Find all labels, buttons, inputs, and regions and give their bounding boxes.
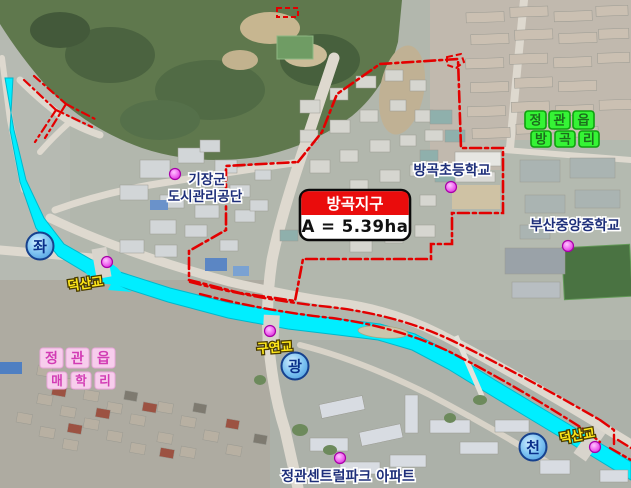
- district-area: A = 5.39ha: [302, 217, 409, 236]
- place-marker: [170, 169, 181, 180]
- road-badge-right: 천: [520, 434, 547, 461]
- road-badge-center-label: 광: [288, 357, 302, 375]
- place-marker: [446, 182, 457, 193]
- district-title-box: 방곡지구 A = 5.39ha: [300, 190, 410, 240]
- road-badge-left-label: 좌: [33, 237, 47, 255]
- map-canvas: 좌 광 천 정 관 읍 방 곡 리 정 관 읍 매 학 리: [0, 0, 631, 488]
- char-box: 관: [554, 113, 566, 129]
- district-name: 방곡지구: [326, 195, 383, 213]
- label-banggok-elementary: 방곡초등학교: [413, 162, 490, 179]
- char-box: 정: [45, 350, 58, 367]
- char-box: 곡: [559, 133, 571, 148]
- aerial-imagery: [0, 0, 631, 488]
- label-busan-jungang-middle: 부산중앙중학교: [530, 217, 620, 234]
- sports-field: [562, 244, 631, 299]
- label-gijang-line1: 기장군: [188, 171, 226, 188]
- char-box: 학: [75, 373, 87, 388]
- place-marker: [265, 326, 276, 337]
- label-gijang-line2: 도시관리공단: [168, 188, 243, 205]
- map-viewport: 좌 광 천 정 관 읍 방 곡 리 정 관 읍 매 학 리: [0, 0, 631, 488]
- place-marker: [590, 442, 601, 453]
- area-label-maehak-ri: 정 관 읍 매 학 리: [40, 348, 115, 389]
- char-box: 읍: [97, 351, 110, 367]
- road-badge-right-label: 천: [526, 438, 540, 456]
- char-box: 매: [51, 373, 63, 388]
- place-marker: [102, 257, 113, 268]
- char-box: 방: [535, 132, 547, 148]
- label-guyeon-bridge: 구연교: [256, 340, 293, 357]
- road-badge-left: 좌: [27, 233, 54, 260]
- label-central-park-apt: 정관센트럴파크 아파트: [281, 468, 415, 485]
- place-marker: [563, 241, 574, 252]
- char-box: 관: [71, 350, 84, 367]
- place-marker: [335, 453, 346, 464]
- char-box: 읍: [578, 113, 590, 129]
- char-box: 정: [530, 113, 542, 129]
- area-label-banggok-ri: 정 관 읍 방 곡 리: [525, 111, 599, 148]
- char-box: 리: [583, 132, 595, 148]
- char-box: 리: [99, 373, 111, 388]
- road-badge-center: 광: [282, 353, 309, 380]
- tennis-court: [277, 36, 313, 59]
